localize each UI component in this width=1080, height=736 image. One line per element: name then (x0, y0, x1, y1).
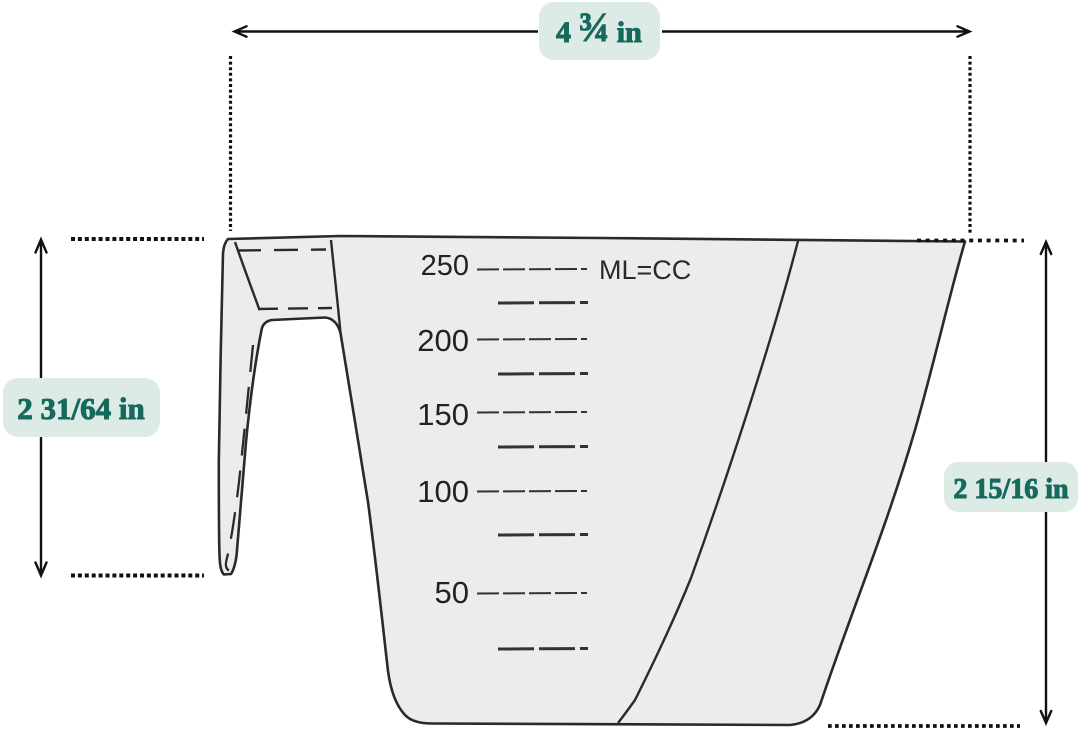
svg-text:200: 200 (417, 323, 469, 358)
svg-text:50: 50 (435, 575, 469, 610)
svg-text:2 15/16 in: 2 15/16 in (953, 474, 1069, 505)
svg-text:150: 150 (417, 397, 469, 432)
svg-text:100: 100 (417, 474, 469, 509)
svg-text:250: 250 (421, 250, 469, 282)
svg-text:ML=CC: ML=CC (599, 255, 691, 285)
svg-text:2 31/64 in: 2 31/64 in (17, 391, 144, 426)
